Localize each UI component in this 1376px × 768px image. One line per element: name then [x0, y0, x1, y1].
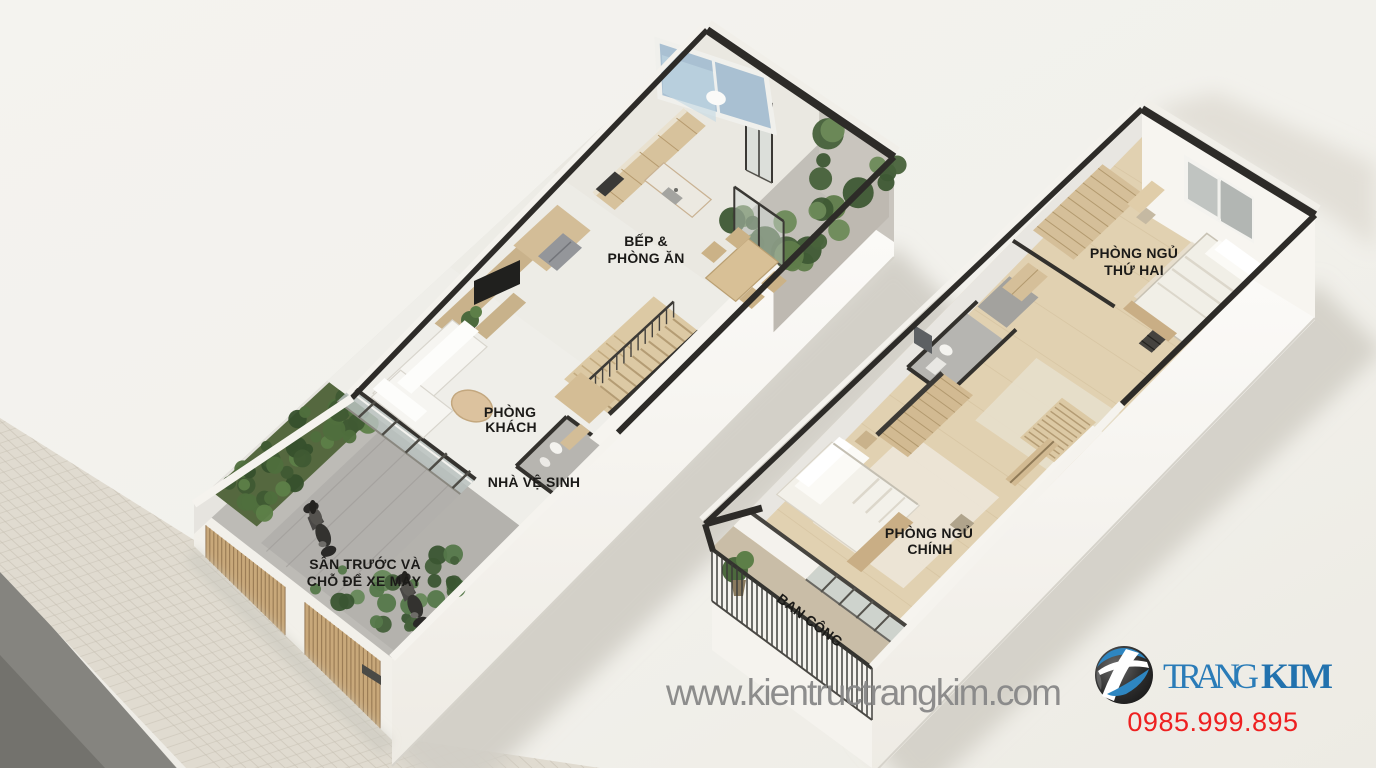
svg-text:THỨ HAI: THỨ HAI	[1104, 261, 1164, 278]
svg-text:0985.999.895: 0985.999.895	[1127, 707, 1298, 737]
svg-text:NHÀ VỆ SINH: NHÀ VỆ SINH	[488, 473, 580, 490]
svg-text:PHÒNG NGỦ: PHÒNG NGỦ	[1090, 244, 1178, 261]
svg-text:TRANG: TRANG	[1163, 656, 1259, 696]
svg-text:KIM: KIM	[1261, 656, 1333, 696]
svg-text:PHÒNG: PHÒNG	[484, 403, 536, 420]
svg-text:PHÒNG ĂN: PHÒNG ĂN	[607, 249, 684, 266]
svg-text:KHÁCH: KHÁCH	[485, 419, 537, 435]
svg-text:CHỖ ĐỂ XE MÁY: CHỖ ĐỂ XE MÁY	[307, 572, 422, 589]
svg-text:PHÒNG NGỦ: PHÒNG NGỦ	[885, 524, 973, 541]
svg-text:www.kientructrangkim.com: www.kientructrangkim.com	[665, 672, 1062, 713]
svg-text:SÂN TRƯỚC VÀ: SÂN TRƯỚC VÀ	[309, 555, 421, 572]
svg-text:BẾP &: BẾP &	[624, 233, 668, 249]
svg-text:CHÍNH: CHÍNH	[907, 541, 952, 557]
